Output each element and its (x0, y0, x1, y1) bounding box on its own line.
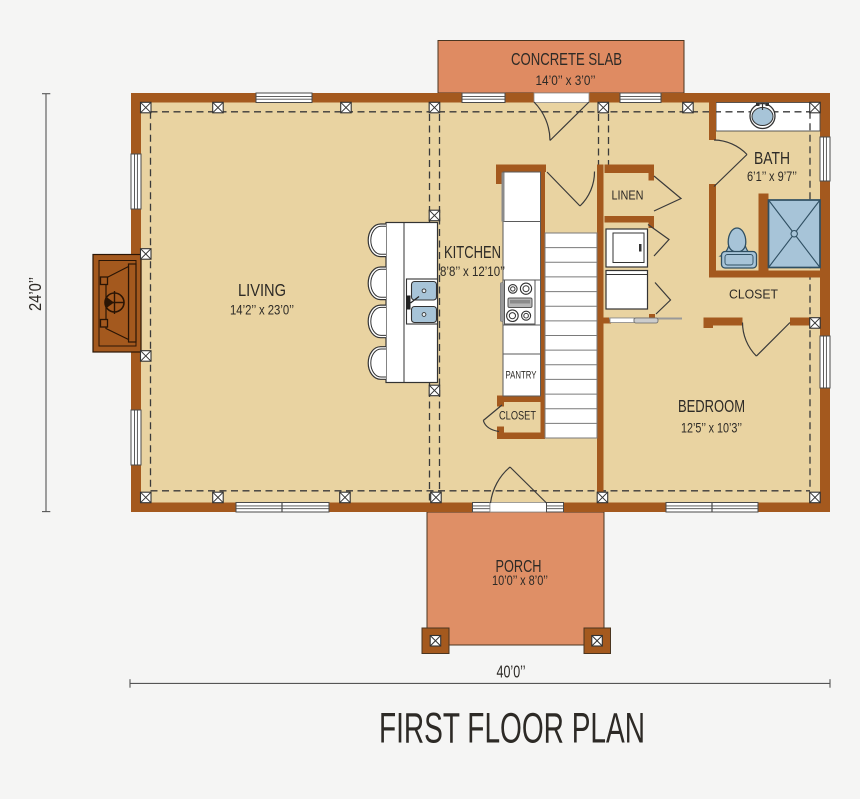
svg-text:LINEN: LINEN (612, 188, 644, 203)
svg-text:BEDROOM: BEDROOM (678, 396, 745, 416)
svg-text:10’0’’ x 8’0’’: 10’0’’ x 8’0’’ (492, 573, 548, 588)
svg-text:LIVING: LIVING (238, 280, 286, 300)
svg-text:KITCHEN: KITCHEN (444, 242, 501, 262)
svg-text:PANTRY: PANTRY (506, 370, 537, 382)
svg-text:14’0’’ x 3’0’’: 14’0’’ x 3’0’’ (536, 73, 596, 88)
svg-text:6’1’’ x 9’7’’: 6’1’’ x 9’7’’ (747, 169, 797, 184)
svg-text:BATH: BATH (754, 148, 790, 168)
svg-text:40’0’’: 40’0’’ (497, 662, 526, 682)
svg-text:12’5’’ x 10’3’’: 12’5’’ x 10’3’’ (681, 421, 742, 436)
svg-text:CONCRETE SLAB: CONCRETE SLAB (511, 49, 622, 69)
svg-text:CLOSET: CLOSET (499, 411, 536, 423)
svg-text:FIRST FLOOR PLAN: FIRST FLOOR PLAN (379, 705, 645, 753)
svg-text:24’0’’: 24’0’’ (25, 277, 45, 311)
svg-text:8’8’’ x 12’10’’: 8’8’’ x 12’10’’ (440, 264, 505, 279)
svg-text:14’2’’ x 23’0’’: 14’2’’ x 23’0’’ (230, 303, 294, 318)
svg-text:CLOSET: CLOSET (729, 287, 778, 302)
